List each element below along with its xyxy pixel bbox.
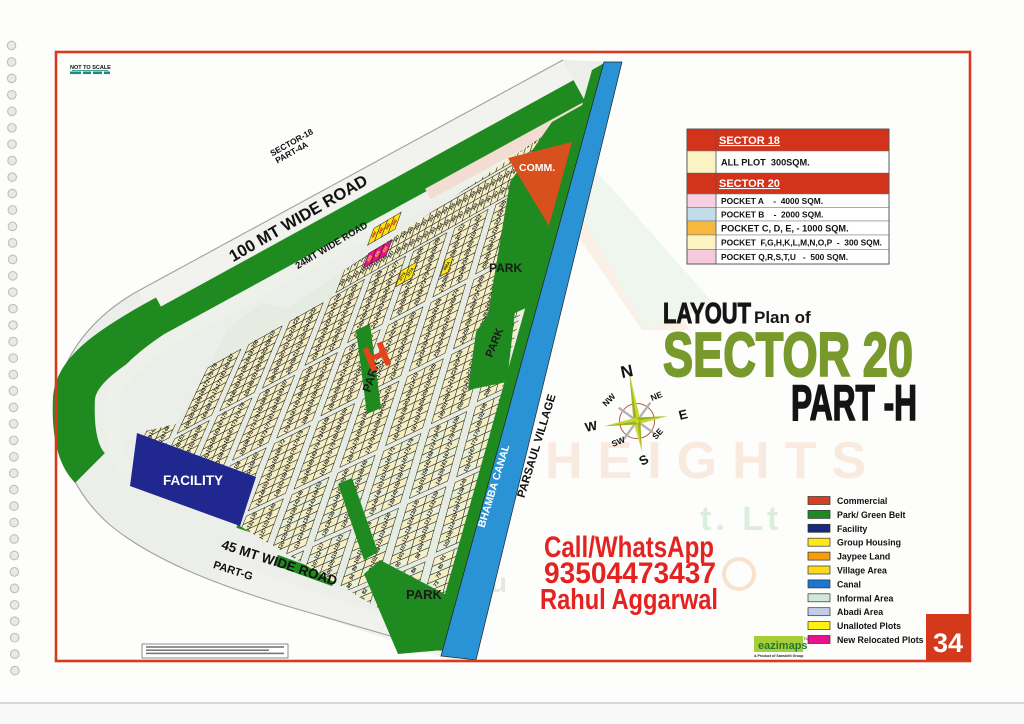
- svg-text:Commercial: Commercial: [837, 496, 887, 506]
- svg-text:PARK: PARK: [489, 261, 522, 275]
- svg-text:Canal: Canal: [837, 579, 861, 589]
- svg-text:Facility: Facility: [837, 524, 867, 534]
- svg-text:POCKET Q,R,S,T,U - 500 SQM.: POCKET Q,R,S,T,U - 500 SQM.: [721, 252, 848, 262]
- svg-text:COMM.: COMM.: [519, 162, 555, 174]
- svg-text:POCKET B - 2000 SQM.: POCKET B - 2000 SQM.: [721, 210, 823, 220]
- svg-text:Park/ Green Belt: Park/ Green Belt: [837, 510, 906, 520]
- svg-text:POCKET A - 4000 SQM.: POCKET A - 4000 SQM.: [721, 196, 823, 206]
- svg-text:Unalloted Plots: Unalloted Plots: [837, 621, 901, 631]
- svg-text:TM: TM: [803, 636, 809, 641]
- svg-text:FACILITY: FACILITY: [163, 473, 223, 488]
- svg-text:POCKET C, D, E, - 1000 SQM.: POCKET C, D, E, - 1000 SQM.: [721, 223, 849, 233]
- svg-text:34: 34: [933, 628, 963, 658]
- svg-text:Jaypee Land: Jaypee Land: [837, 552, 890, 562]
- svg-text:Village Area: Village Area: [837, 566, 887, 576]
- svg-text:eazimaps: eazimaps: [758, 640, 808, 652]
- svg-text:New Relocated Plots: New Relocated Plots: [837, 635, 924, 645]
- svg-text:HEIGHTS: HEIGHTS: [545, 432, 881, 490]
- svg-text:Group Housing: Group Housing: [837, 538, 901, 548]
- svg-text:A Product of Sanskriti Group: A Product of Sanskriti Group: [754, 654, 804, 658]
- svg-text:Abadi Area: Abadi Area: [837, 607, 883, 617]
- svg-text:ALL PLOT 300SQM.: ALL PLOT 300SQM.: [721, 157, 810, 167]
- svg-text:Informal Area: Informal Area: [837, 593, 893, 603]
- svg-text:SECTOR 20: SECTOR 20: [719, 178, 780, 190]
- svg-text:PARK: PARK: [406, 587, 442, 602]
- svg-text:POCKET F,G,H,K,L,M,N,O,P -: POCKET F,G,H,K,L,M,N,O,P - 300 SQM.: [721, 238, 882, 248]
- svg-text:Rahul Aggarwal: Rahul Aggarwal: [540, 584, 718, 616]
- svg-text:SECTOR 18: SECTOR 18: [719, 135, 780, 147]
- svg-text:PART -H: PART -H: [791, 375, 917, 431]
